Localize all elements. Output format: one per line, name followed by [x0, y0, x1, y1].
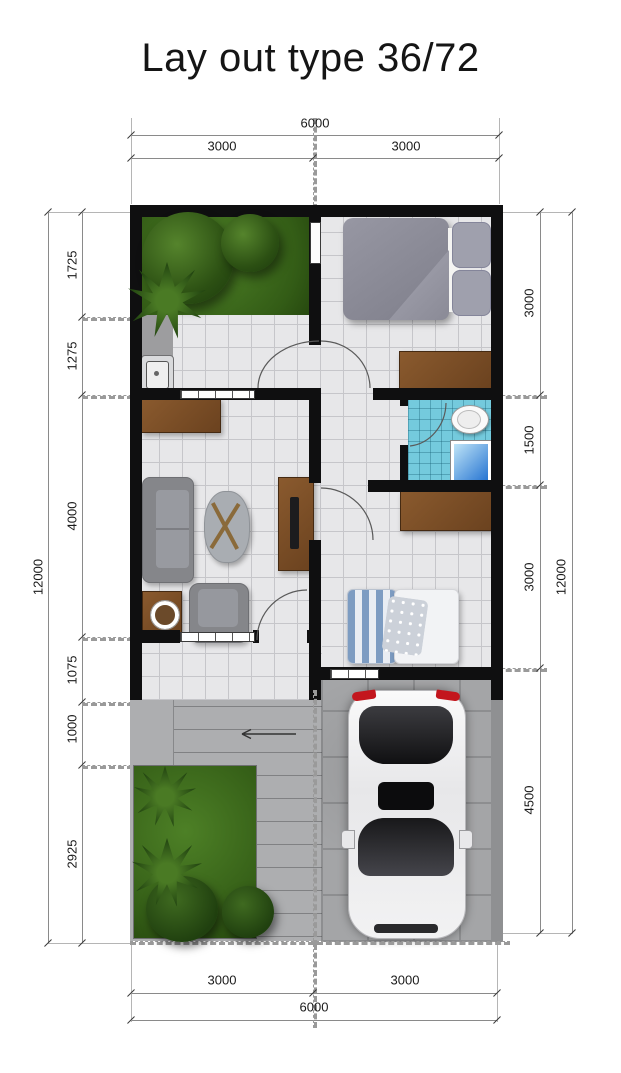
entry-arrow — [242, 730, 296, 739]
front-bush — [146, 876, 218, 942]
floorplan-page: Lay out type 36/72 — [0, 0, 621, 1073]
door-swing-arcs — [0, 0, 621, 1073]
tree-small — [221, 214, 279, 272]
front-bush — [222, 886, 274, 938]
